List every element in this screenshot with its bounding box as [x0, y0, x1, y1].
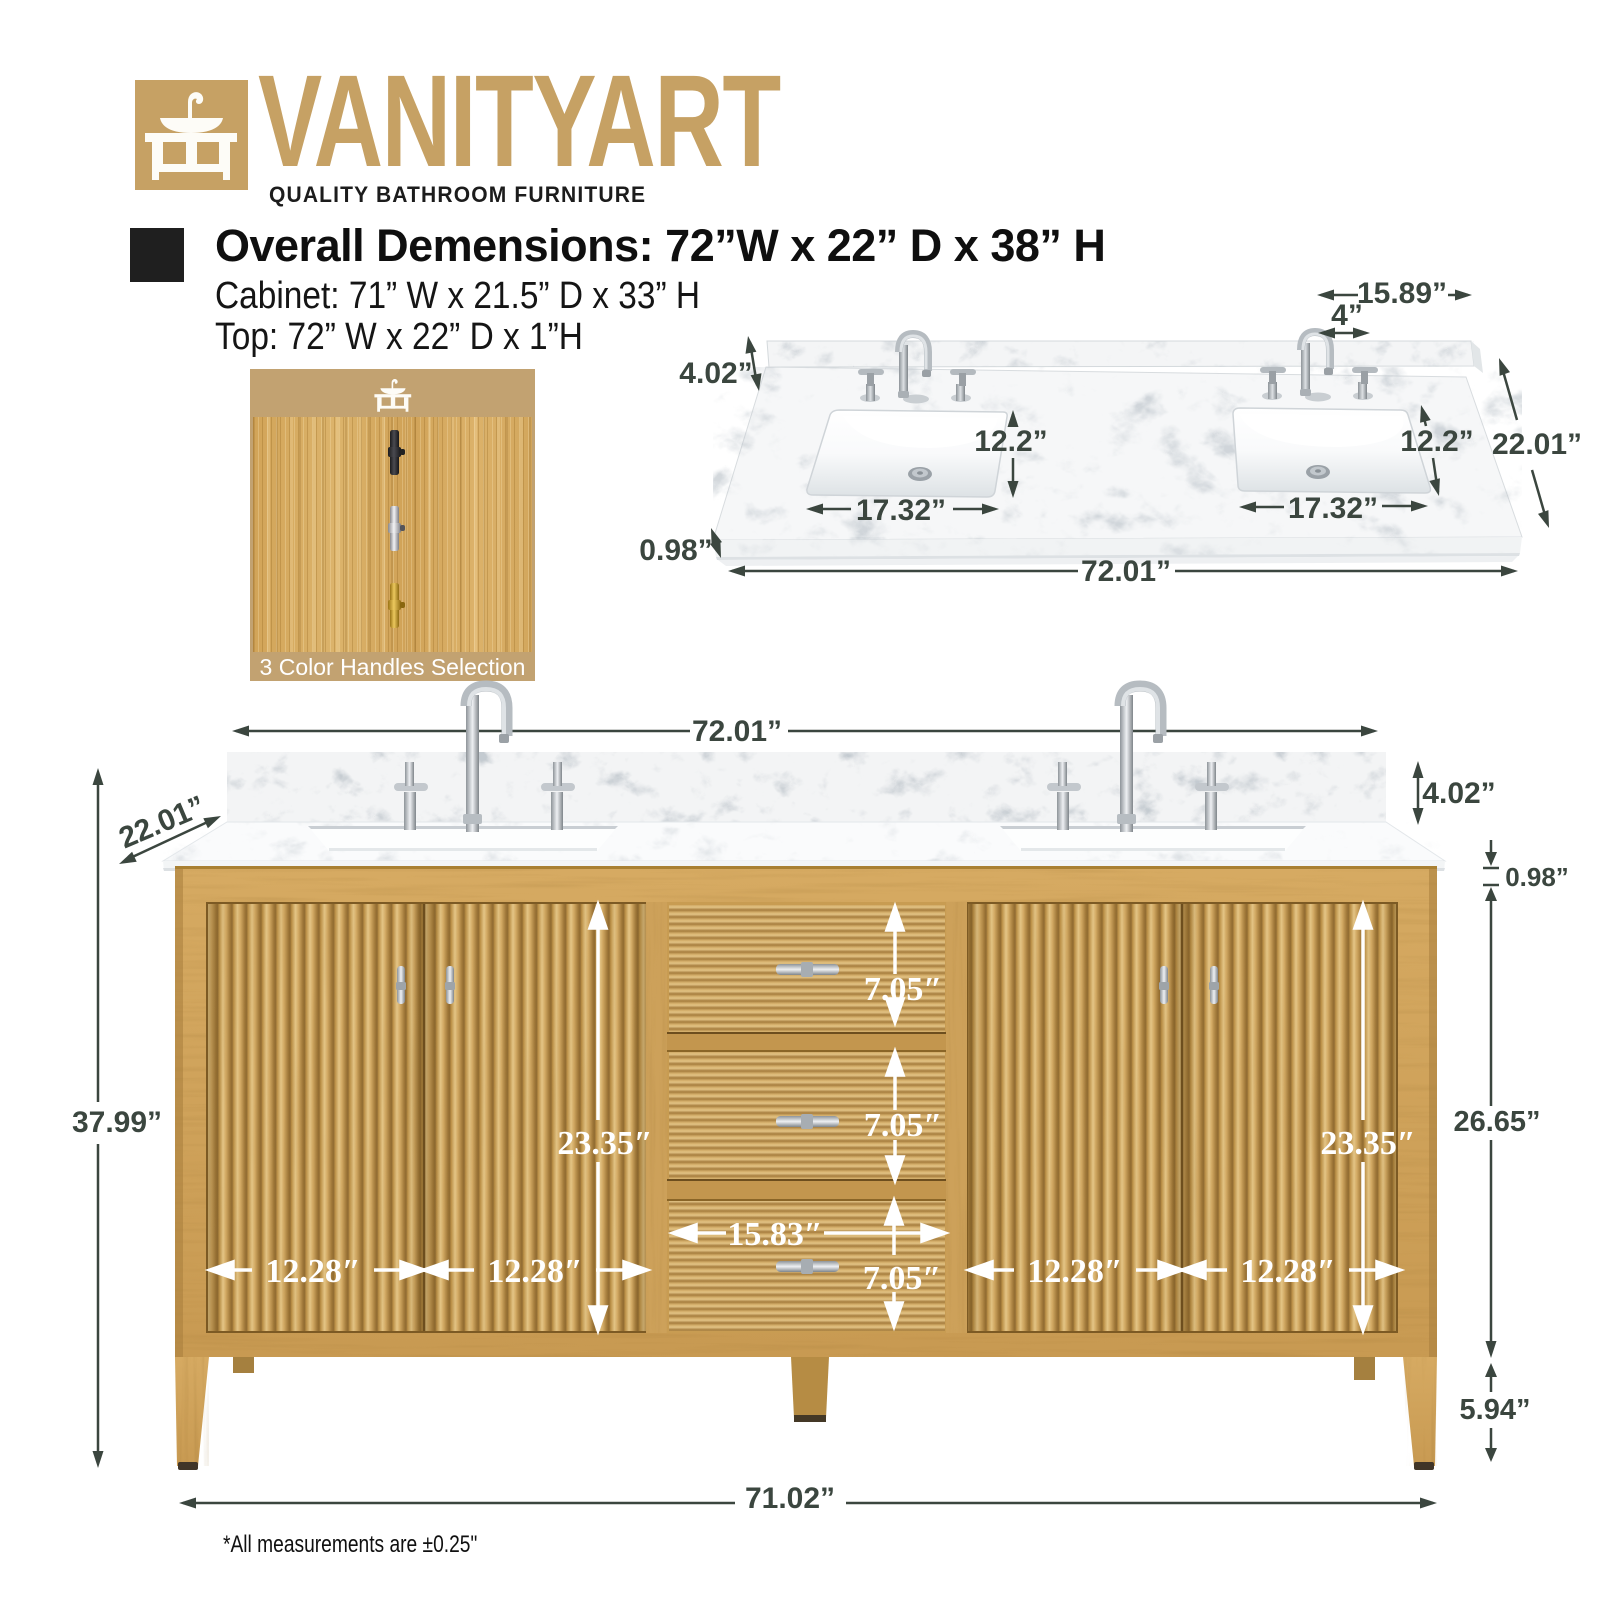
svg-text:12.28″: 12.28″: [1240, 1253, 1335, 1290]
svg-text:71.02”: 71.02”: [745, 1482, 835, 1515]
svg-text:7.05″: 7.05″: [863, 1260, 941, 1297]
svg-text:15.89”: 15.89”: [1357, 277, 1447, 310]
svg-text:12.28″: 12.28″: [1027, 1253, 1122, 1290]
svg-text:26.65”: 26.65”: [1453, 1106, 1540, 1138]
svg-text:17.32”: 17.32”: [1288, 492, 1378, 525]
svg-text:4.02”: 4.02”: [679, 357, 752, 390]
svg-text:23.35″: 23.35″: [1320, 1125, 1415, 1162]
svg-text:7.05″: 7.05″: [864, 971, 942, 1008]
svg-text:22.01”: 22.01”: [1492, 428, 1582, 461]
svg-text:72.01”: 72.01”: [692, 715, 782, 748]
svg-text:4.02”: 4.02”: [1422, 777, 1495, 810]
svg-text:12.28″: 12.28″: [265, 1253, 360, 1290]
svg-text:17.32”: 17.32”: [856, 494, 946, 527]
svg-text:5.94”: 5.94”: [1460, 1394, 1531, 1426]
svg-text:12.2”: 12.2”: [1400, 425, 1473, 458]
svg-text:12.28″: 12.28″: [487, 1253, 582, 1290]
svg-text:0.98”: 0.98”: [640, 534, 713, 567]
svg-text:7.05″: 7.05″: [864, 1107, 942, 1144]
svg-text:37.99”: 37.99”: [72, 1106, 162, 1139]
svg-text:4”: 4”: [1331, 299, 1363, 332]
svg-text:23.35″: 23.35″: [557, 1125, 652, 1162]
svg-text:72.01”: 72.01”: [1081, 555, 1171, 588]
svg-text:12.2”: 12.2”: [974, 425, 1047, 458]
svg-text:0.98”: 0.98”: [1505, 862, 1569, 892]
svg-text:15.83″: 15.83″: [727, 1216, 822, 1253]
